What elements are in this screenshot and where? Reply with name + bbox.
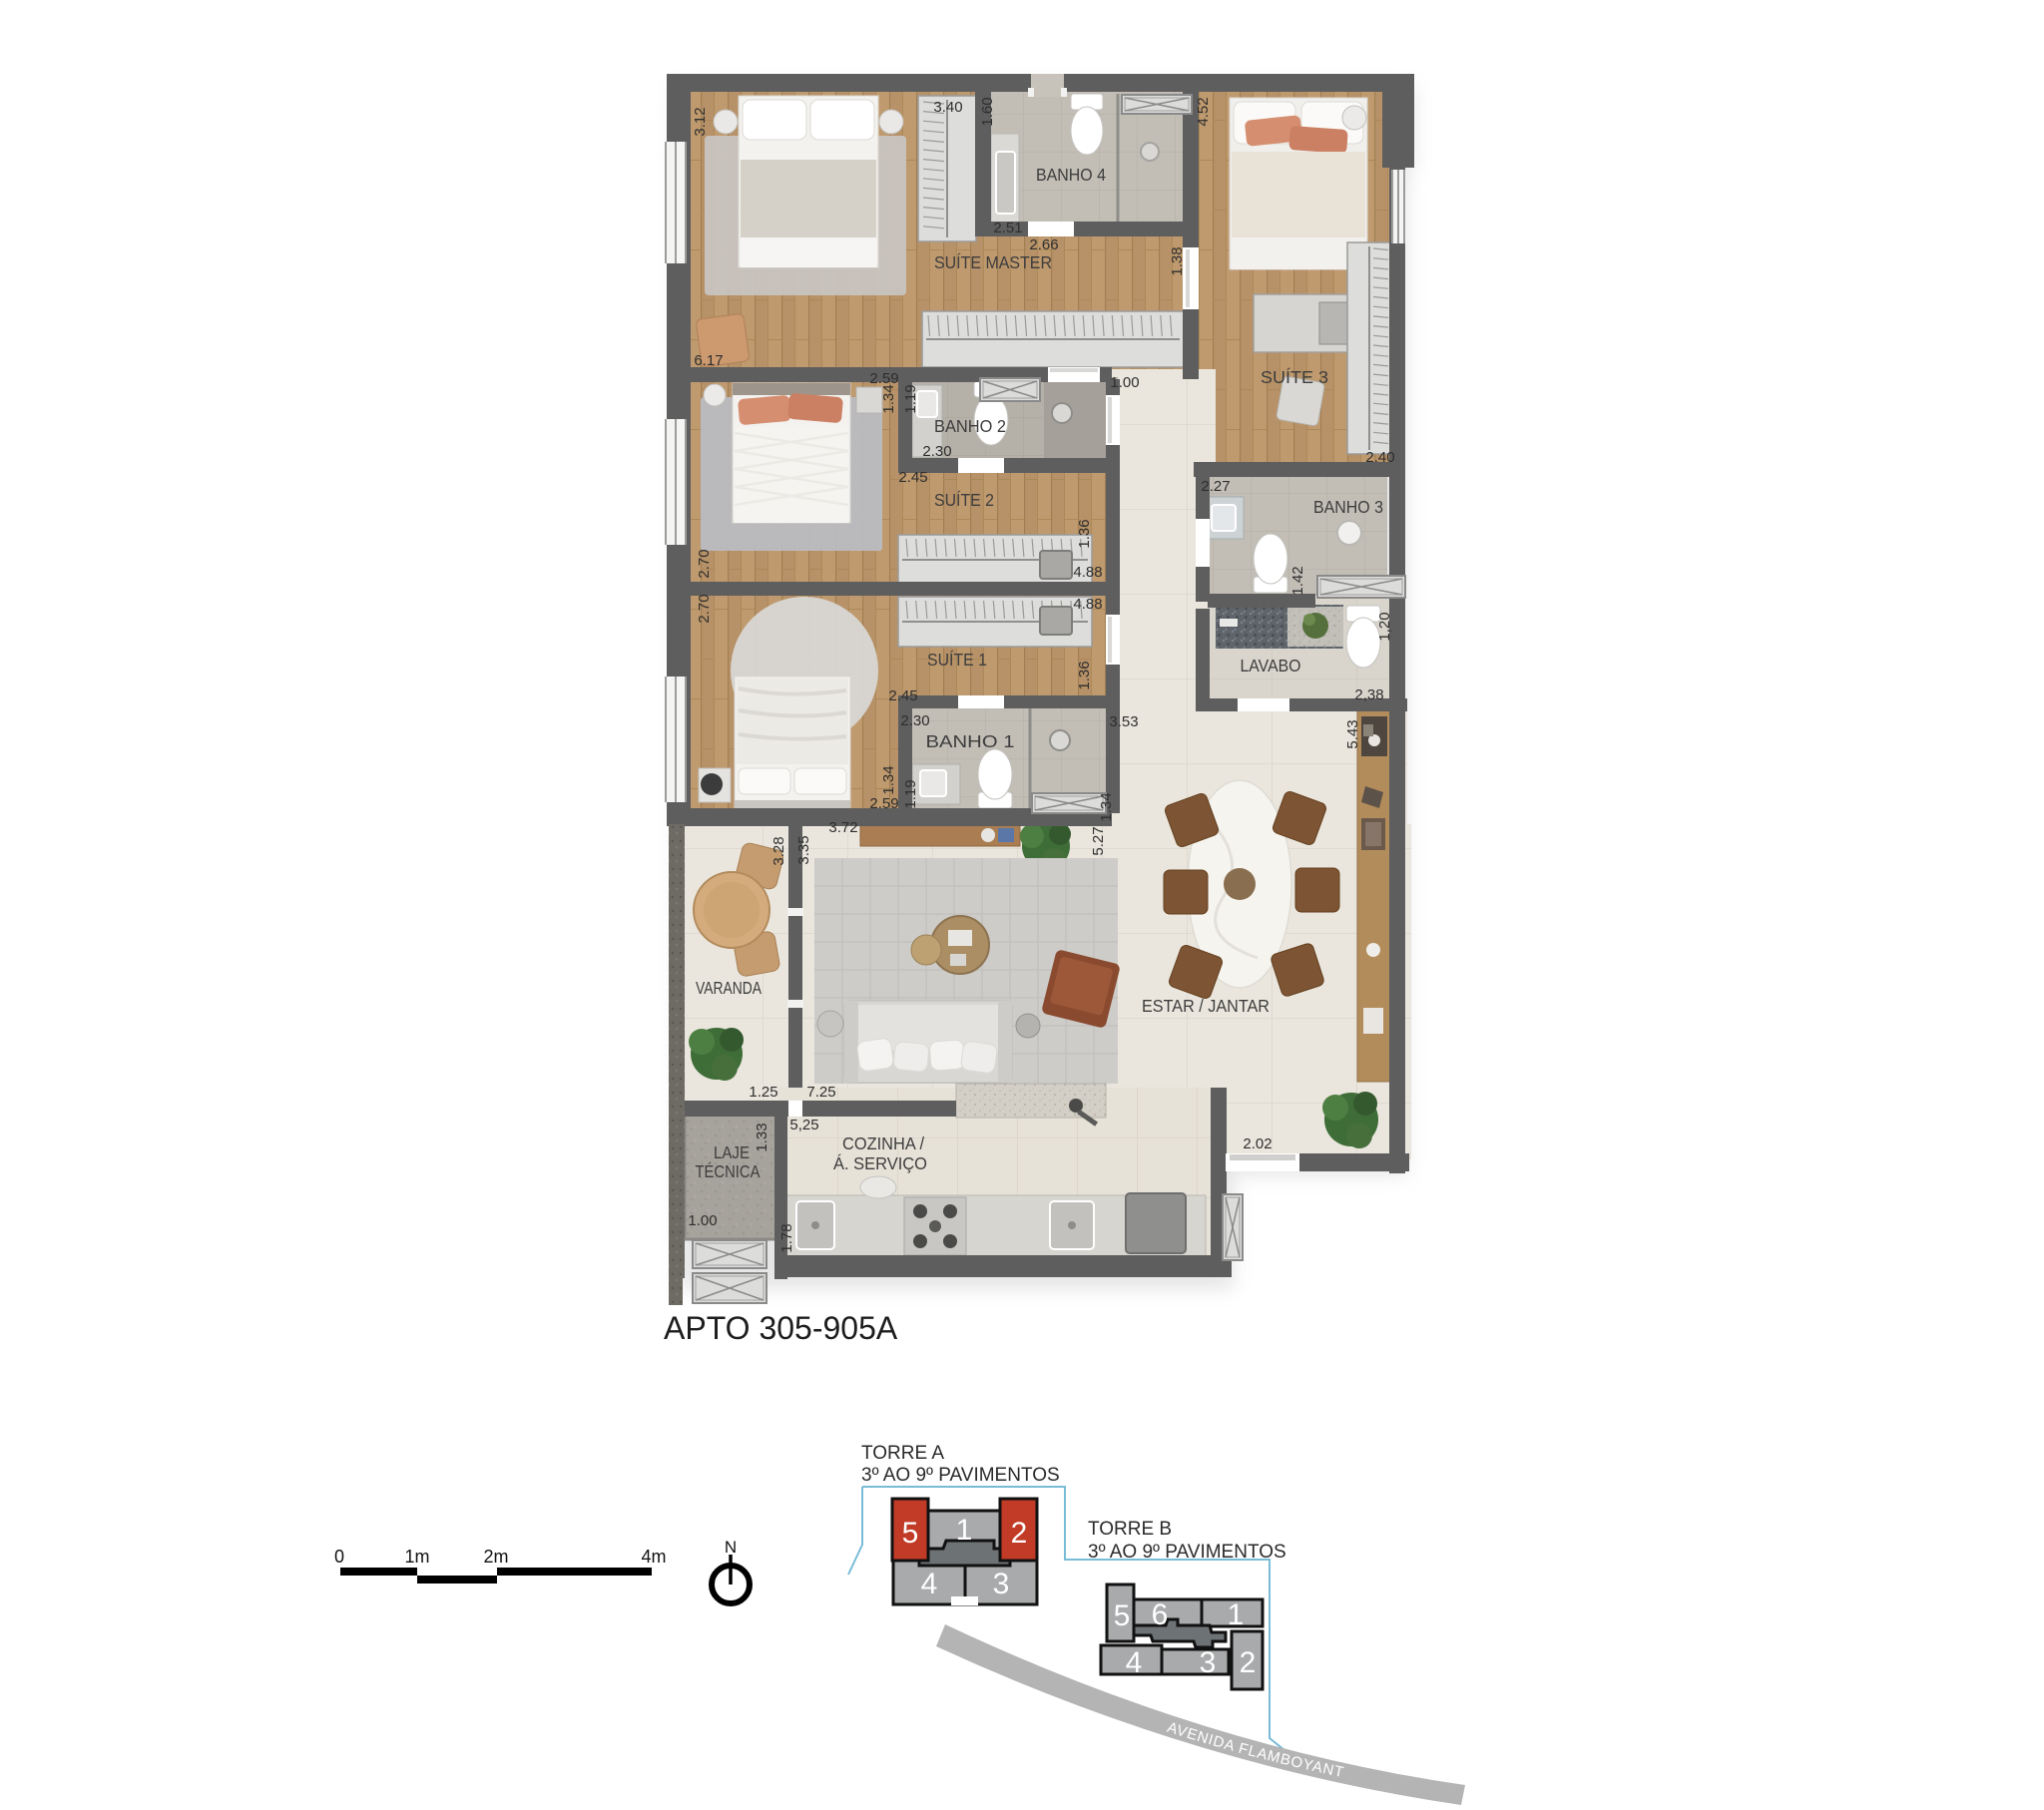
svg-text:5: 5 bbox=[1114, 1599, 1131, 1632]
svg-text:1.33: 1.33 bbox=[754, 1123, 770, 1151]
svg-text:TÉCNICA: TÉCNICA bbox=[696, 1161, 761, 1181]
svg-text:2.27: 2.27 bbox=[1201, 478, 1230, 495]
svg-text:3.72: 3.72 bbox=[828, 819, 857, 836]
svg-text:2.30: 2.30 bbox=[900, 712, 929, 729]
svg-text:SUÍTE MASTER: SUÍTE MASTER bbox=[934, 252, 1052, 272]
svg-text:3º AO 9º PAVIMENTOS: 3º AO 9º PAVIMENTOS bbox=[1088, 1542, 1286, 1563]
svg-text:BANHO 2: BANHO 2 bbox=[934, 416, 1006, 436]
svg-text:N: N bbox=[725, 1538, 737, 1557]
svg-text:2.51: 2.51 bbox=[993, 220, 1022, 236]
svg-text:TORRE B: TORRE B bbox=[1088, 1519, 1172, 1540]
svg-text:4.88: 4.88 bbox=[1073, 596, 1102, 613]
svg-text:1.19: 1.19 bbox=[902, 779, 919, 808]
svg-text:2.59: 2.59 bbox=[869, 795, 898, 812]
svg-text:SUÍTE 1: SUÍTE 1 bbox=[927, 650, 987, 670]
svg-text:5.27: 5.27 bbox=[1090, 826, 1107, 855]
svg-text:2.70: 2.70 bbox=[696, 594, 713, 623]
svg-text:3.40: 3.40 bbox=[933, 99, 962, 116]
svg-text:3.12: 3.12 bbox=[692, 107, 709, 136]
svg-text:2.02: 2.02 bbox=[1243, 1135, 1272, 1152]
svg-text:ESTAR / JANTAR: ESTAR / JANTAR bbox=[1142, 996, 1270, 1016]
svg-text:2.40: 2.40 bbox=[1365, 449, 1394, 466]
svg-text:6.17: 6.17 bbox=[694, 352, 723, 369]
svg-text:1.19: 1.19 bbox=[902, 384, 919, 413]
svg-text:0: 0 bbox=[334, 1547, 344, 1567]
svg-text:3.53: 3.53 bbox=[1109, 713, 1138, 730]
svg-text:BANHO 4: BANHO 4 bbox=[1036, 165, 1106, 185]
svg-text:1.25: 1.25 bbox=[749, 1084, 777, 1101]
svg-text:1.00: 1.00 bbox=[688, 1212, 717, 1229]
svg-text:3: 3 bbox=[1200, 1646, 1217, 1679]
svg-text:2.70: 2.70 bbox=[696, 549, 713, 578]
svg-text:4m: 4m bbox=[641, 1547, 666, 1567]
svg-text:VARANDA: VARANDA bbox=[696, 978, 762, 998]
svg-text:1.60: 1.60 bbox=[979, 97, 996, 126]
svg-text:2: 2 bbox=[1011, 1517, 1028, 1550]
svg-text:LAVABO: LAVABO bbox=[1241, 656, 1301, 676]
svg-text:SUÍTE 2: SUÍTE 2 bbox=[934, 490, 994, 510]
svg-text:APTO 305-905A: APTO 305-905A bbox=[664, 1310, 898, 1346]
svg-text:4: 4 bbox=[1126, 1646, 1143, 1679]
svg-text:4.52: 4.52 bbox=[1195, 97, 1212, 126]
svg-text:1.42: 1.42 bbox=[1289, 566, 1306, 595]
svg-text:Á. SERVIÇO: Á. SERVIÇO bbox=[833, 1153, 927, 1173]
svg-text:1: 1 bbox=[1228, 1598, 1245, 1631]
svg-text:3º AO 9º PAVIMENTOS: 3º AO 9º PAVIMENTOS bbox=[861, 1465, 1060, 1486]
svg-text:5: 5 bbox=[902, 1517, 919, 1550]
svg-text:1.38: 1.38 bbox=[1169, 246, 1186, 275]
svg-text:2: 2 bbox=[1240, 1646, 1257, 1679]
svg-text:1m: 1m bbox=[404, 1547, 429, 1567]
svg-text:3.28: 3.28 bbox=[770, 836, 787, 865]
svg-text:1.34: 1.34 bbox=[880, 765, 897, 794]
svg-text:2.45: 2.45 bbox=[888, 687, 917, 704]
svg-text:4.88: 4.88 bbox=[1073, 564, 1102, 581]
svg-text:5.43: 5.43 bbox=[1344, 719, 1361, 748]
svg-text:BANHO 1: BANHO 1 bbox=[926, 731, 1015, 751]
svg-text:1: 1 bbox=[956, 1514, 973, 1547]
svg-text:4: 4 bbox=[921, 1568, 938, 1600]
svg-text:TORRE A: TORRE A bbox=[861, 1443, 944, 1464]
svg-text:5,25: 5,25 bbox=[789, 1117, 818, 1133]
svg-text:1.34: 1.34 bbox=[1098, 792, 1115, 821]
svg-text:1.78: 1.78 bbox=[778, 1223, 795, 1252]
svg-text:1.36: 1.36 bbox=[1076, 519, 1093, 548]
svg-text:1.36: 1.36 bbox=[1076, 661, 1093, 689]
svg-text:LAJE: LAJE bbox=[714, 1142, 750, 1162]
svg-text:7.25: 7.25 bbox=[806, 1084, 835, 1101]
svg-text:COZINHA /: COZINHA / bbox=[842, 1133, 924, 1153]
svg-text:2.66: 2.66 bbox=[1029, 236, 1058, 253]
svg-text:SUÍTE 3: SUÍTE 3 bbox=[1261, 367, 1328, 387]
svg-text:AVENIDA FLAMBOYANT: AVENIDA FLAMBOYANT bbox=[1165, 1719, 1345, 1781]
svg-text:1.00: 1.00 bbox=[1110, 374, 1139, 391]
svg-text:2.30: 2.30 bbox=[922, 443, 951, 460]
svg-text:2,38: 2,38 bbox=[1354, 686, 1383, 703]
svg-text:3.35: 3.35 bbox=[795, 835, 812, 864]
svg-text:3: 3 bbox=[993, 1568, 1010, 1600]
svg-text:1,20: 1,20 bbox=[1376, 612, 1393, 641]
svg-text:2m: 2m bbox=[483, 1547, 508, 1567]
svg-text:2.45: 2.45 bbox=[898, 469, 927, 486]
svg-text:1.34: 1.34 bbox=[880, 384, 897, 413]
svg-text:BANHO 3: BANHO 3 bbox=[1313, 497, 1383, 517]
svg-text:6: 6 bbox=[1152, 1598, 1169, 1631]
